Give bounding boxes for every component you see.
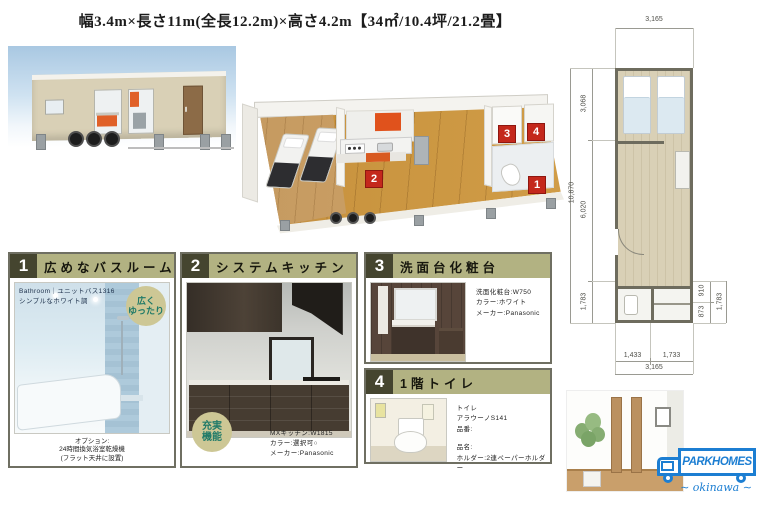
fridge	[414, 136, 429, 165]
dim-extension	[570, 323, 615, 324]
trailer-wheel	[86, 131, 102, 147]
feature-panel-bathroom: 1 広めなバスルーム Bathroom｜ユニットバス1316 シンプルなホワイト…	[8, 252, 176, 468]
kitchen-orange-front	[366, 152, 390, 162]
dim-bottom-total: 3,165	[615, 364, 693, 371]
spec-line: カラー:ホワイト	[476, 298, 540, 308]
panel-title: 1階トイレ	[393, 370, 550, 394]
panel-number: 3	[366, 254, 393, 278]
spec-line: トイレ	[457, 404, 546, 414]
bathroom-divider-wall	[484, 105, 492, 187]
spec-line: MXキッチン:W1815	[270, 429, 334, 439]
panel-header: 1 広めなバスルーム	[10, 254, 174, 278]
panel-title: システムキッチン	[209, 254, 356, 278]
trailer-wheel	[104, 131, 120, 147]
sink	[377, 142, 393, 152]
dim-extension	[693, 323, 694, 374]
door-frame	[631, 397, 642, 473]
feature-panel-toilet: 4 1階トイレ トイレ アラウーノS141 品番: 品名: ホルダー:2連ペーパ…	[364, 368, 552, 464]
dim-bottom-seg2: 1,733	[650, 352, 693, 359]
badge-line: ゆったり	[128, 306, 164, 316]
logo-subtext: okinawa	[672, 481, 760, 494]
potted-plant	[573, 413, 607, 453]
dim-extension	[570, 68, 615, 69]
plan-bed	[623, 76, 651, 134]
dim-extension	[615, 323, 616, 374]
overlay-line: Bathroom｜ユニットバス1316	[19, 287, 115, 297]
shower-bar	[121, 321, 123, 375]
dim-right-seg2: 873	[699, 292, 706, 332]
upper-cabinets	[187, 283, 282, 332]
stove-top	[303, 377, 339, 381]
badge-full-featured: 充実 機能	[192, 412, 232, 452]
shower-head	[117, 316, 129, 320]
badge-line: 充実	[202, 421, 222, 433]
vanity-photo	[370, 282, 466, 362]
burner	[353, 147, 356, 150]
dim-right-total: 1,783	[717, 282, 724, 322]
spec-line: メーカー:Panasonic	[476, 309, 540, 319]
panel-header: 2 システムキッチン	[182, 254, 356, 278]
plan-bed	[657, 76, 685, 134]
vanity-specs: 洗面化粧台:W750 カラー:ホワイト メーカー:Panasonic	[466, 282, 540, 362]
trailer-body	[32, 71, 226, 141]
door-frame	[611, 397, 622, 473]
logo-truck-trailer: PARKHOMES	[678, 448, 756, 476]
trailer-wheel	[347, 212, 359, 224]
panel-footer-note: オプション: 24時間換気浴室乾燥機 (フラット天井に設置)	[10, 438, 174, 463]
spec-line: ホルダー:2連ペーパーホルダー	[457, 454, 546, 475]
trailer-support-leg	[546, 198, 556, 209]
dim-extension	[615, 28, 616, 68]
plan-bed-blanket	[624, 97, 650, 133]
tall-cabinet	[378, 286, 388, 334]
plan-bath-fixture	[624, 295, 638, 315]
photo-caption-overlay: Bathroom｜ユニットバス1316 シンプルなホワイト調	[19, 287, 115, 307]
plan-bathroom-wall	[618, 286, 690, 289]
range-hood	[292, 283, 343, 335]
footer-line: (フラット天井に設置)	[10, 455, 174, 463]
spec-line: カラー:選択可○	[270, 439, 334, 449]
trailer-support-leg	[36, 134, 46, 150]
company-logo: PARKHOMES okinawa	[648, 444, 760, 498]
overlay-line: シンプルなホワイト調	[19, 297, 115, 307]
panel-number: 2	[182, 254, 209, 278]
logo-truck-window	[661, 461, 674, 471]
trailer-wheel	[364, 212, 376, 224]
dim-line	[615, 28, 693, 29]
floor-plan-outline	[615, 68, 693, 323]
marker-kitchen: 2	[366, 171, 382, 187]
dim-extension	[693, 28, 694, 68]
plan-bedroom-wall	[618, 141, 664, 144]
dim-left-total: 10,870	[569, 173, 576, 213]
trailer-small-window	[45, 99, 64, 114]
window-orange-cabinet	[97, 115, 117, 126]
panel-number: 4	[366, 370, 393, 394]
dim-extension	[592, 281, 615, 282]
spec-line: 品番:	[457, 425, 546, 435]
picture-frame	[655, 407, 671, 427]
toilet-bowl	[394, 431, 427, 453]
dim-line	[592, 68, 593, 323]
plant-pot	[583, 471, 601, 487]
trailer-window-living	[128, 88, 154, 134]
panel-header: 4 1階トイレ	[366, 370, 550, 394]
feature-panel-kitchen: 2 システムキッチン 充実 機能 MXキッチン:W1815 カラー:選択可○ メ…	[180, 252, 358, 468]
toilet-specs: トイレ アラウーノS141 品番: 品名: ホルダー:2連ペーパーホルダー	[447, 398, 546, 474]
window-orange-panel	[130, 92, 139, 107]
badge-spacious: 広く ゆったり	[126, 286, 166, 326]
marker-toilet: 4	[528, 124, 544, 140]
dim-line	[615, 374, 693, 375]
bathroom-photo: Bathroom｜ユニットバス1316 シンプルなホワイト調 広く ゆったり	[14, 282, 170, 434]
vanity-floor	[371, 354, 465, 361]
window-appliance	[133, 113, 146, 129]
dim-line	[726, 281, 727, 323]
panel-title: 洗面台化粧台	[393, 254, 550, 278]
kitchen-specs: MXキッチン:W1815 カラー:選択可○ メーカー:Panasonic	[270, 429, 334, 459]
plan-bed-blanket	[658, 97, 684, 133]
panel-title: 広めなバスルーム	[37, 254, 174, 278]
door-knob	[185, 107, 187, 112]
spec-line: 品名:	[457, 443, 546, 453]
panel-header: 3 洗面台化粧台	[366, 254, 550, 278]
plan-partition-wall	[654, 303, 690, 305]
marker-bath: 1	[529, 177, 545, 193]
dim-extension	[650, 323, 651, 358]
plan-door-swing	[618, 229, 644, 255]
panel-number: 1	[10, 254, 37, 278]
page-title: 幅3.4m×長さ11m(全長12.2m)×高さ4.2m【34㎡/10.4坪/21…	[28, 10, 562, 31]
spec-line: アラウーノS141	[457, 414, 546, 424]
toilet-photo	[370, 398, 447, 462]
dim-left-seg1: 3,068	[581, 84, 588, 124]
spec-line: メーカー:Panasonic	[270, 449, 334, 459]
cutaway-left-wall	[242, 103, 258, 202]
footer-line: 24時間換気浴室乾燥機	[10, 446, 174, 454]
badge-line: 広く	[137, 296, 155, 306]
trailer-support-leg	[486, 208, 496, 219]
ground-line	[128, 147, 234, 149]
vanity-mirror	[394, 288, 437, 322]
panel-body: 洗面化粧台:W750 カラー:ホワイト メーカー:Panasonic	[366, 278, 550, 366]
vanity-base-cabinet	[392, 325, 435, 354]
dim-left-seg3: 1,783	[581, 282, 588, 322]
flyer-page: 幅3.4m×長さ11m(全長12.2m)×高さ4.2m【34㎡/10.4坪/21…	[0, 0, 760, 506]
trailer-window-kitchen	[94, 89, 122, 135]
spec-line: 洗面化粧台:W750	[476, 288, 540, 298]
plan-kitchen-counter	[675, 151, 690, 189]
dim-line	[615, 361, 693, 362]
plant-leaf	[581, 431, 596, 447]
wall-art	[375, 403, 385, 417]
side-table	[439, 328, 463, 354]
burner	[358, 147, 361, 150]
trailer-support-leg	[280, 220, 290, 231]
marker-vanity: 3	[499, 126, 515, 142]
spacer	[457, 435, 546, 443]
trailer-wheel	[68, 131, 84, 147]
trailer-support-leg	[414, 215, 424, 226]
dim-bottom-seg1: 1,433	[615, 352, 650, 359]
logo-wordmark: PARKHOMES	[682, 456, 751, 468]
kitchen-orange-panel	[375, 113, 401, 131]
feature-panel-vanity: 3 洗面台化粧台 洗面化粧台:W750 カラー:ホワイト メーカー:Panaso…	[364, 252, 552, 364]
panel-body: トイレ アラウーノS141 品番: 品名: ホルダー:2連ペーパーホルダー	[366, 394, 550, 478]
pillow	[283, 138, 305, 149]
dim-extension	[592, 140, 615, 141]
exterior-render	[8, 46, 236, 176]
dim-left-seg2: 6,020	[581, 190, 588, 230]
burner	[348, 147, 351, 150]
trailer-wheel	[330, 212, 342, 224]
cutaway-render: 2 3 4 1	[234, 84, 564, 238]
floor-plan: 3,165 10,870 3,068 6,020 1,783 910 873 1…	[558, 8, 760, 398]
badge-line: 機能	[202, 432, 222, 444]
wall-art	[422, 404, 434, 420]
dim-top: 3,165	[615, 16, 693, 23]
